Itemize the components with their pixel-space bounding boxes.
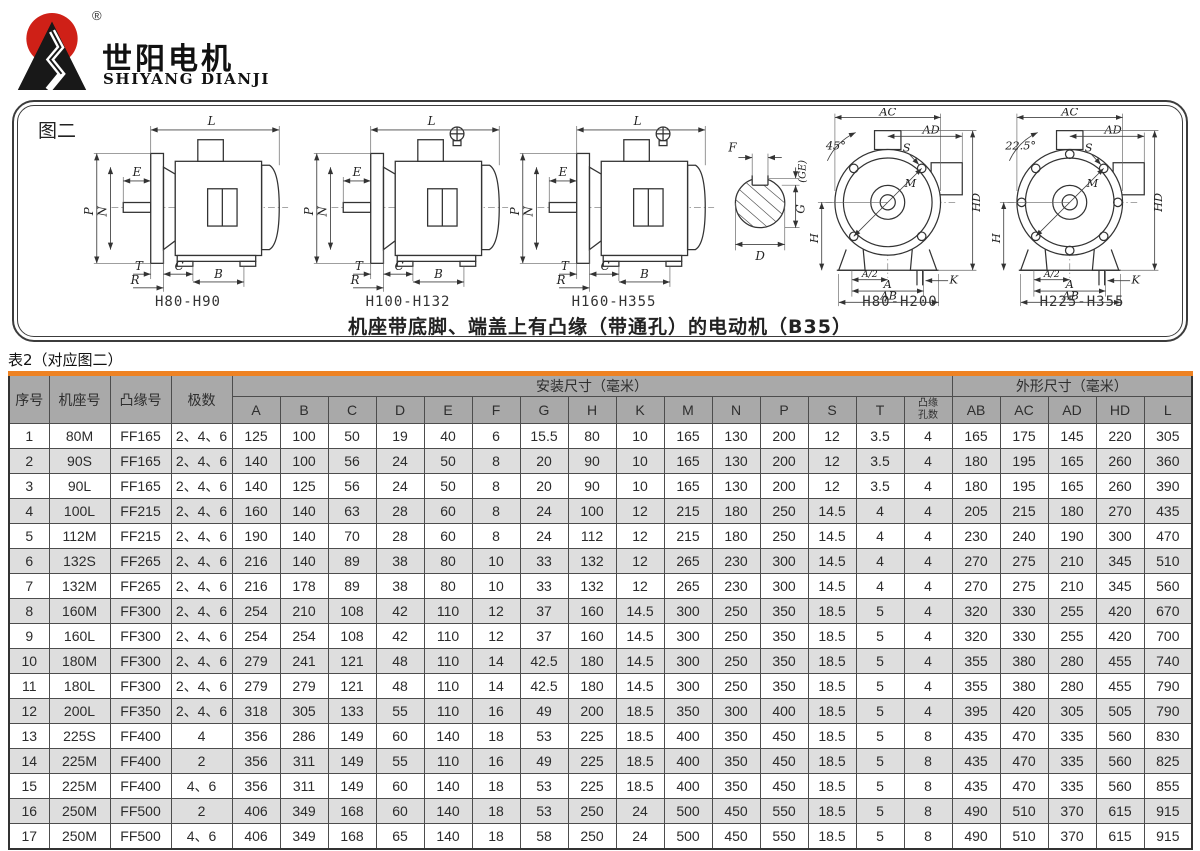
table-cell: 311 <box>280 749 328 774</box>
table-cell: 254 <box>232 624 280 649</box>
column-header: E <box>424 397 472 424</box>
table-cell: 130 <box>712 424 760 449</box>
table-cell: 12 <box>616 524 664 549</box>
table-cell: 260 <box>1096 449 1144 474</box>
svg-text:R: R <box>556 273 566 287</box>
table-cell: 100L <box>49 499 110 524</box>
column-header: AD <box>1048 397 1096 424</box>
table-cell: 178 <box>280 574 328 599</box>
table-cell: 140 <box>424 824 472 850</box>
table-cell: 165 <box>952 424 1000 449</box>
table-cell: 560 <box>1096 749 1144 774</box>
svg-text:HD: HD <box>1151 193 1165 213</box>
table-cell: 490 <box>952 824 1000 850</box>
table-cell: 80 <box>424 549 472 574</box>
table-cell: 58 <box>520 824 568 850</box>
table-cell: 225 <box>568 724 616 749</box>
table-cell: 14 <box>9 749 49 774</box>
table-cell: FF215 <box>110 524 171 549</box>
table-cell: 12 <box>472 599 520 624</box>
svg-text:T: T <box>355 259 364 273</box>
group-header-overall: 外形尺寸（毫米） <box>952 374 1192 397</box>
table-cell: 4 <box>904 624 952 649</box>
table-cell: 2、4、6 <box>171 549 232 574</box>
table-cell: 10 <box>616 424 664 449</box>
column-header: HD <box>1096 397 1144 424</box>
table-cell: 205 <box>952 499 1000 524</box>
table-cell: 28 <box>376 524 424 549</box>
table-row: 8160MFF3002、4、625421010842110123716014.5… <box>9 599 1192 624</box>
table-row: 17250MFF5004、640634916865140185825024500… <box>9 824 1192 850</box>
table-cell: 1 <box>9 424 49 449</box>
svg-text:A/2: A/2 <box>1043 269 1060 280</box>
table-cell: 215 <box>664 499 712 524</box>
table-cell: 370 <box>1048 799 1096 824</box>
table-cell: 149 <box>328 749 376 774</box>
table-cell: 450 <box>760 749 808 774</box>
table-cell: 53 <box>520 774 568 799</box>
table-cell: 740 <box>1144 649 1192 674</box>
table-cell: 14 <box>472 674 520 699</box>
svg-text:A/2: A/2 <box>861 269 878 280</box>
table-cell: 400 <box>760 699 808 724</box>
svg-text:L: L <box>207 114 216 128</box>
table-cell: 260 <box>1096 474 1144 499</box>
front-view-2-caption: H225-H355 <box>990 294 1174 310</box>
table-cell: 40 <box>424 424 472 449</box>
svg-text:P: P <box>304 206 316 216</box>
column-header: B <box>280 397 328 424</box>
table-cell: 349 <box>280 824 328 850</box>
table-cell: 180 <box>952 474 1000 499</box>
table-cell: 4 <box>904 574 952 599</box>
table-cell: 406 <box>232 824 280 850</box>
table-cell: 320 <box>952 624 1000 649</box>
column-header: K <box>616 397 664 424</box>
table-row: 12200LFF3502、4、631830513355110164920018.… <box>9 699 1192 724</box>
table-cell: FF165 <box>110 449 171 474</box>
svg-text:H: H <box>808 232 821 244</box>
table-cell: 305 <box>1048 699 1096 724</box>
table-cell: 5 <box>856 799 904 824</box>
table-cell: 100 <box>280 449 328 474</box>
table-cell: 12 <box>808 474 856 499</box>
table-cell: 37 <box>520 599 568 624</box>
table-cell: 12 <box>616 549 664 574</box>
table-cell: FF165 <box>110 474 171 499</box>
svg-text:T: T <box>135 259 144 273</box>
table-cell: 100 <box>568 499 616 524</box>
table-cell: 455 <box>1096 649 1144 674</box>
svg-text:R: R <box>350 273 360 287</box>
table-cell: 250 <box>712 599 760 624</box>
svg-text:22.5°: 22.5° <box>1004 139 1036 153</box>
table-cell: 60 <box>424 524 472 549</box>
table-cell: 4 <box>856 524 904 549</box>
svg-text:L: L <box>633 114 642 128</box>
table-cell: 48 <box>376 649 424 674</box>
table-cell: 435 <box>1144 499 1192 524</box>
table-cell: 5 <box>856 674 904 699</box>
table-row: 390LFF1652、4、614012556245082090101651302… <box>9 474 1192 499</box>
table-row: 15225MFF4004、635631114960140185322518.54… <box>9 774 1192 799</box>
table-cell: 2 <box>171 799 232 824</box>
table-cell: 4 <box>904 649 952 674</box>
table-cell: 420 <box>1096 599 1144 624</box>
table-cell: 10 <box>616 474 664 499</box>
column-header: 凸缘孔数 <box>904 397 952 424</box>
table-cell: 250 <box>712 624 760 649</box>
table-cell: 300 <box>760 574 808 599</box>
table-cell: 4 <box>904 699 952 724</box>
table-cell: 50 <box>328 424 376 449</box>
table-cell: 140 <box>280 499 328 524</box>
motor-side-view-2-drawing: L E P N T R C B <box>304 112 512 294</box>
table-cell: 15 <box>9 774 49 799</box>
front-view-1-caption: H80-H200 <box>808 294 992 310</box>
table-cell: 300 <box>664 649 712 674</box>
table-cell: 4 <box>9 499 49 524</box>
table-cell: 14.5 <box>616 599 664 624</box>
svg-text:C: C <box>175 259 184 273</box>
table-cell: 180 <box>952 449 1000 474</box>
table-cell: 450 <box>712 824 760 850</box>
svg-text:N: N <box>522 205 536 217</box>
table-cell: 380 <box>1000 674 1048 699</box>
table-cell: 350 <box>712 724 760 749</box>
table-cell: 15.5 <box>520 424 568 449</box>
table-cell: 175 <box>1000 424 1048 449</box>
table-cell: 90 <box>568 449 616 474</box>
logo-sun-mountain-icon <box>14 8 90 94</box>
table-cell: 65 <box>376 824 424 850</box>
motor-side-view-3-drawing: L E P N T R C B <box>510 112 718 294</box>
table-cell: 435 <box>952 724 1000 749</box>
table-cell: 149 <box>328 774 376 799</box>
table-cell: 42.5 <box>520 649 568 674</box>
table-cell: 255 <box>1048 599 1096 624</box>
table-cell: 121 <box>328 674 376 699</box>
svg-text:K: K <box>949 272 959 286</box>
table-cell: 110 <box>424 699 472 724</box>
table-row: 9160LFF3002、4、625425410842110123716014.5… <box>9 624 1192 649</box>
table-cell: 250 <box>568 824 616 850</box>
table-cell: 225M <box>49 774 110 799</box>
table-row: 7132MFF2652、4、62161788938801033132122652… <box>9 574 1192 599</box>
table-cell: 435 <box>952 749 1000 774</box>
table-cell: 60 <box>376 774 424 799</box>
table-cell: 24 <box>376 474 424 499</box>
table-cell: 915 <box>1144 824 1192 850</box>
table-header: 序号 机座号 凸缘号 极数 安装尺寸（毫米） 外形尺寸（毫米） ABCDEFGH… <box>9 374 1192 424</box>
table-cell: 90 <box>568 474 616 499</box>
svg-text:C: C <box>395 259 404 273</box>
table-cell: 790 <box>1144 674 1192 699</box>
table-cell: 2 <box>171 749 232 774</box>
svg-text:45°: 45° <box>825 139 846 153</box>
svg-text:P: P <box>84 206 96 216</box>
table-cell: 50 <box>424 449 472 474</box>
table-cell: 318 <box>232 699 280 724</box>
table-cell: 230 <box>712 574 760 599</box>
table-cell: 4 <box>904 424 952 449</box>
table-cell: 140 <box>424 774 472 799</box>
table-cell: 14 <box>472 649 520 674</box>
table-cell: 80 <box>568 424 616 449</box>
table-cell: 42 <box>376 599 424 624</box>
svg-text:N: N <box>96 205 110 217</box>
table-cell: 125 <box>280 474 328 499</box>
table-cell: 915 <box>1144 799 1192 824</box>
table-cell: 2、4、6 <box>171 674 232 699</box>
column-header: C <box>328 397 376 424</box>
table-cell: 286 <box>280 724 328 749</box>
table-cell: 14.5 <box>616 674 664 699</box>
table-cell: 7 <box>9 574 49 599</box>
table-cell: 270 <box>952 574 1000 599</box>
motor-front-view-1-drawing: AC AD 45° S M H HD A/2 A AB K <box>808 108 992 308</box>
table-cell: FF400 <box>110 749 171 774</box>
table-cell: 470 <box>1000 749 1048 774</box>
table-cell: 6 <box>9 549 49 574</box>
table-cell: 56 <box>328 449 376 474</box>
table-cell: FF500 <box>110 799 171 824</box>
table-row: 16250MFF50024063491686014018532502450045… <box>9 799 1192 824</box>
table-cell: 670 <box>1144 599 1192 624</box>
table-cell: 335 <box>1048 774 1096 799</box>
table-cell: 18.5 <box>808 649 856 674</box>
table-cell: 4 <box>904 549 952 574</box>
table-cell: 168 <box>328 824 376 850</box>
table-cell: 16 <box>472 699 520 724</box>
column-header: AC <box>1000 397 1048 424</box>
table-row: 180MFF1652、4、6125100501940615.5801016513… <box>9 424 1192 449</box>
svg-text:AC: AC <box>1060 108 1078 119</box>
table-cell: 100 <box>280 424 328 449</box>
table-cell: 5 <box>856 824 904 850</box>
table-cell: 140 <box>424 799 472 824</box>
table-cell: 700 <box>1144 624 1192 649</box>
table-cell: 18.5 <box>616 699 664 724</box>
column-header: F <box>472 397 520 424</box>
table-cell: 53 <box>520 799 568 824</box>
table-row: 11180LFF3002、4、6279279121481101442.51801… <box>9 674 1192 699</box>
table-cell: 615 <box>1096 824 1144 850</box>
table-cell: 10 <box>472 574 520 599</box>
table-cell: 180 <box>1048 499 1096 524</box>
table-cell: 470 <box>1000 774 1048 799</box>
table-cell: 300 <box>664 624 712 649</box>
svg-text:E: E <box>132 165 142 179</box>
table-cell: 140 <box>232 449 280 474</box>
column-header: T <box>856 397 904 424</box>
column-header: L <box>1144 397 1192 424</box>
table-cell: 18.5 <box>808 699 856 724</box>
table-cell: 90L <box>49 474 110 499</box>
table-cell: 180 <box>712 499 760 524</box>
table-cell: 406 <box>232 799 280 824</box>
table-cell: 615 <box>1096 799 1144 824</box>
table-cell: 790 <box>1144 699 1192 724</box>
table-cell: 12 <box>808 449 856 474</box>
table-cell: 160 <box>568 624 616 649</box>
table-cell: 250 <box>712 674 760 699</box>
table-cell: 305 <box>1144 424 1192 449</box>
table-cell: 160L <box>49 624 110 649</box>
table-cell: 210 <box>1048 574 1096 599</box>
table-cell: 2、4、6 <box>171 599 232 624</box>
table-cell: 38 <box>376 574 424 599</box>
table-cell: FF165 <box>110 424 171 449</box>
table-cell: 4 <box>904 499 952 524</box>
table-cell: 132 <box>568 549 616 574</box>
table-cell: 180 <box>568 674 616 699</box>
column-header: AB <box>952 397 1000 424</box>
svg-text:AD: AD <box>1104 122 1122 136</box>
table-cell: 140 <box>280 524 328 549</box>
table-row: 14225MFF400235631114955110164922518.5400… <box>9 749 1192 774</box>
table-cell: 14.5 <box>808 549 856 574</box>
svg-text:E: E <box>558 165 568 179</box>
table-cell: FF350 <box>110 699 171 724</box>
table-cell: 55 <box>376 749 424 774</box>
table-cell: 3 <box>9 474 49 499</box>
table-cell: 356 <box>232 749 280 774</box>
table-cell: 18 <box>472 824 520 850</box>
figure-panel: 图二 L E P N T R C <box>12 100 1188 342</box>
table-cell: 300 <box>664 674 712 699</box>
table-cell: 250 <box>760 499 808 524</box>
table-cell: 400 <box>664 749 712 774</box>
table-cell: 230 <box>952 524 1000 549</box>
table-cell: 435 <box>952 774 1000 799</box>
table-cell: 55 <box>376 699 424 724</box>
table-cell: 216 <box>232 574 280 599</box>
table-cell: 125 <box>232 424 280 449</box>
table-cell: 250M <box>49 824 110 850</box>
table-row: 13225SFF400435628614960140185322518.5400… <box>9 724 1192 749</box>
svg-text:(GE): (GE) <box>797 160 808 183</box>
table-cell: 225M <box>49 749 110 774</box>
table-cell: 8 <box>904 774 952 799</box>
svg-text:E: E <box>352 165 362 179</box>
table-cell: 350 <box>664 699 712 724</box>
figure-panel-inner: 图二 L E P N T R C <box>17 105 1183 337</box>
table-cell: 18.5 <box>808 724 856 749</box>
table-cell: 4 <box>904 674 952 699</box>
table-cell: 165 <box>1048 449 1096 474</box>
svg-text:AC: AC <box>878 108 896 119</box>
table-cell: 42 <box>376 624 424 649</box>
table-cell: 2 <box>9 449 49 474</box>
table-cell: 5 <box>856 649 904 674</box>
table-cell: 90S <box>49 449 110 474</box>
table-cell: 5 <box>9 524 49 549</box>
table-cell: 56 <box>328 474 376 499</box>
table-cell: 275 <box>1000 574 1048 599</box>
table-cell: 500 <box>664 824 712 850</box>
table-cell: 300 <box>664 599 712 624</box>
table-cell: 12 <box>808 424 856 449</box>
svg-text:AD: AD <box>922 122 940 136</box>
table-cell: 825 <box>1144 749 1192 774</box>
table-cell: 18.5 <box>616 724 664 749</box>
table-cell: 3.5 <box>856 424 904 449</box>
table-cell: 10 <box>616 449 664 474</box>
table-cell: 89 <box>328 574 376 599</box>
table-cell: 280 <box>1048 649 1096 674</box>
table-cell: 11 <box>9 674 49 699</box>
table-cell: 10 <box>472 549 520 574</box>
table-cell: 37 <box>520 624 568 649</box>
table-cell: 279 <box>232 649 280 674</box>
table-cell: 3.5 <box>856 449 904 474</box>
table-cell: 180 <box>712 524 760 549</box>
column-header: D <box>376 397 424 424</box>
table-cell: 5 <box>856 599 904 624</box>
figure-label: 图二 <box>38 116 76 143</box>
table-cell: 395 <box>952 699 1000 724</box>
table-cell: 380 <box>1000 649 1048 674</box>
svg-text:G: G <box>793 204 807 213</box>
table-cell: 24 <box>520 524 568 549</box>
svg-text:H: H <box>990 232 1003 244</box>
table-cell: 132S <box>49 549 110 574</box>
table-cell: 49 <box>520 699 568 724</box>
svg-text:T: T <box>561 259 570 273</box>
table-cell: 145 <box>1048 424 1096 449</box>
table-cell: 165 <box>1048 474 1096 499</box>
figure-caption: 机座带底脚、端盖上有凸缘（带通孔）的电动机（B35） <box>18 312 1182 339</box>
table-cell: 110 <box>424 599 472 624</box>
table-cell: 216 <box>232 549 280 574</box>
table-cell: 14.5 <box>808 499 856 524</box>
table-cell: 160M <box>49 599 110 624</box>
table-cell: 550 <box>760 824 808 850</box>
side-view-2-caption: H100-H132 <box>304 294 512 310</box>
table-cell: 275 <box>1000 549 1048 574</box>
table-cell: 16 <box>9 799 49 824</box>
table-cell: 2、4、6 <box>171 524 232 549</box>
table-row: 10180MFF3002、4、6279241121481101442.51801… <box>9 649 1192 674</box>
table-cell: 241 <box>280 649 328 674</box>
column-header: N <box>712 397 760 424</box>
table-cell: 250 <box>568 799 616 824</box>
table-cell: 400 <box>664 724 712 749</box>
table-cell: 349 <box>280 799 328 824</box>
table-cell: 225S <box>49 724 110 749</box>
company-logo: ® 世阳电机 SHIYANG DIANJI <box>10 6 310 98</box>
table-cell: FF265 <box>110 574 171 599</box>
table-cell: 200 <box>760 474 808 499</box>
table-cell: 140 <box>280 549 328 574</box>
table-cell: 210 <box>1048 549 1096 574</box>
table-cell: 225 <box>568 749 616 774</box>
column-header: A <box>232 397 280 424</box>
table-cell: 510 <box>1000 824 1048 850</box>
table-cell: 110 <box>424 674 472 699</box>
svg-text:S: S <box>1085 140 1093 154</box>
table-cell: 160 <box>232 499 280 524</box>
motor-side-view-1-drawing: L E P N T R C B <box>84 112 292 294</box>
dimension-table: 序号 机座号 凸缘号 极数 安装尺寸（毫米） 外形尺寸（毫米） ABCDEFGH… <box>8 371 1193 850</box>
table-cell: 38 <box>376 549 424 574</box>
svg-text:R: R <box>130 273 140 287</box>
column-header-frame: 机座号 <box>49 374 110 424</box>
table-cell: 5 <box>856 624 904 649</box>
table-cell: 450 <box>760 774 808 799</box>
table-cell: 8 <box>9 599 49 624</box>
